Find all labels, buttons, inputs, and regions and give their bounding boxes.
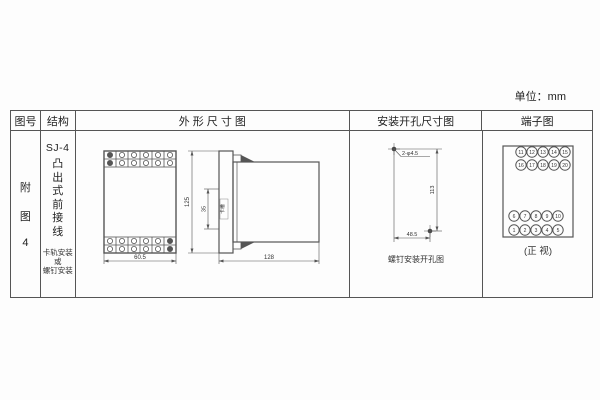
svg-text:9: 9 bbox=[545, 214, 548, 220]
header-mounting: 安装开孔尺寸图 bbox=[350, 111, 483, 130]
terminal-9: 9 bbox=[541, 211, 551, 221]
terminal-12: 12 bbox=[526, 147, 536, 157]
fig-no-cell: 附 图 4 bbox=[11, 131, 41, 297]
svg-text:1: 1 bbox=[512, 228, 515, 234]
terminal-15: 15 bbox=[559, 147, 569, 157]
terminal-circles: 1112131415161718192067891012345 bbox=[508, 147, 569, 235]
terminal-caption: (正 视) bbox=[524, 245, 552, 257]
screw-terminal bbox=[107, 160, 112, 165]
screw-terminal bbox=[107, 238, 112, 243]
screw-terminal bbox=[167, 246, 172, 251]
front-width-dim: 60.5 bbox=[134, 255, 146, 261]
svg-text:3: 3 bbox=[534, 228, 537, 234]
header-outline: 外 形 尺 寸 图 bbox=[76, 111, 350, 130]
terminal-5: 5 bbox=[552, 225, 562, 235]
terminal-1: 1 bbox=[508, 225, 518, 235]
structure-cell: SJ-4 凸出式前接线 卡轨安装 或 螺钉安装 bbox=[41, 131, 76, 297]
table-body-row: 附 图 4 SJ-4 凸出式前接线 卡轨安装 或 螺钉安装 bbox=[11, 131, 592, 297]
table-header-row: 图号 结构 外 形 尺 寸 图 安装开孔尺寸图 端子图 bbox=[11, 111, 592, 131]
slot-dim: 35 bbox=[201, 206, 207, 212]
mounting-drawing-cell: 2-φ4.5 113 48.5 螺钉安装开孔图 bbox=[350, 131, 483, 297]
screw-terminal bbox=[119, 152, 124, 157]
front-view bbox=[104, 151, 176, 264]
screw-terminal bbox=[131, 152, 136, 157]
fig-no-char: 附 bbox=[20, 179, 31, 195]
screw-terminal bbox=[167, 238, 172, 243]
side-height-dim: 125 bbox=[185, 196, 191, 207]
svg-text:17: 17 bbox=[529, 163, 535, 169]
model-label: SJ-4 bbox=[46, 142, 70, 154]
slot-label: 卡槽 bbox=[219, 204, 226, 214]
screw-terminal bbox=[155, 152, 160, 157]
holes-label: 2-φ4.5 bbox=[402, 151, 418, 157]
datasheet-page: 单位：mm 图号 结构 外 形 尺 寸 图 安装开孔尺寸图 端子图 附 图 4 … bbox=[0, 0, 600, 400]
terminal-7: 7 bbox=[519, 211, 529, 221]
screw-terminal bbox=[143, 246, 148, 251]
terminal-6: 6 bbox=[508, 211, 518, 221]
svg-text:19: 19 bbox=[551, 163, 557, 169]
screw-terminal bbox=[131, 246, 136, 251]
header-terminal: 端子图 bbox=[482, 111, 592, 130]
header-structure: 结构 bbox=[41, 111, 76, 130]
header-fig-no: 图号 bbox=[11, 111, 41, 130]
mount-note-line: 螺钉安装 bbox=[43, 266, 73, 275]
terminal-3: 3 bbox=[530, 225, 540, 235]
svg-text:2: 2 bbox=[523, 228, 526, 234]
terminal-2: 2 bbox=[519, 225, 529, 235]
svg-text:15: 15 bbox=[562, 150, 568, 156]
mounting-caption: 螺钉安装开孔图 bbox=[388, 254, 444, 264]
dimension-table: 图号 结构 外 形 尺 寸 图 安装开孔尺寸图 端子图 附 图 4 SJ-4 凸… bbox=[10, 110, 593, 298]
terminal-17: 17 bbox=[526, 160, 536, 170]
svg-text:13: 13 bbox=[540, 150, 546, 156]
terminal-body-outline bbox=[503, 146, 573, 237]
terminal-13: 13 bbox=[537, 147, 547, 157]
screw-terminal bbox=[155, 160, 160, 165]
screw-terminal bbox=[143, 238, 148, 243]
svg-text:11: 11 bbox=[518, 150, 523, 156]
side-view bbox=[188, 151, 319, 264]
mounting-height-dim: 113 bbox=[430, 186, 436, 195]
svg-text:10: 10 bbox=[555, 214, 561, 220]
mount-note-line: 卡轨安装 bbox=[43, 248, 73, 257]
terminal-18: 18 bbox=[537, 160, 547, 170]
svg-text:4: 4 bbox=[545, 228, 548, 234]
screw-terminal bbox=[107, 246, 112, 251]
screw-terminal bbox=[167, 152, 172, 157]
svg-text:6: 6 bbox=[512, 214, 515, 220]
outline-drawing-cell: 60.5 bbox=[76, 131, 350, 297]
terminal-diagram-svg: 1112131415161718192067891012345 (正 视) bbox=[483, 131, 592, 297]
unit-label: 单位：mm bbox=[515, 88, 566, 104]
outline-drawing-svg: 60.5 bbox=[76, 131, 349, 297]
screw-terminal bbox=[143, 152, 148, 157]
mount-note-line: 或 bbox=[43, 257, 73, 266]
svg-text:7: 7 bbox=[523, 214, 526, 220]
terminal-10: 10 bbox=[552, 211, 562, 221]
terminal-diagram-cell: 1112131415161718192067891012345 (正 视) bbox=[483, 131, 592, 297]
terminal-19: 19 bbox=[548, 160, 558, 170]
screw-terminal bbox=[131, 238, 136, 243]
screw-terminal bbox=[167, 160, 172, 165]
screw-terminal bbox=[155, 246, 160, 251]
terminal-11: 11 bbox=[515, 147, 525, 157]
terminal-8: 8 bbox=[530, 211, 540, 221]
side-depth-dim: 128 bbox=[264, 255, 275, 261]
svg-text:12: 12 bbox=[529, 150, 535, 156]
screw-terminal bbox=[119, 160, 124, 165]
screw-terminal bbox=[119, 238, 124, 243]
svg-text:14: 14 bbox=[551, 150, 557, 156]
terminal-14: 14 bbox=[548, 147, 558, 157]
mounting-width-dim: 48.5 bbox=[406, 232, 417, 238]
svg-text:5: 5 bbox=[556, 228, 559, 234]
svg-text:8: 8 bbox=[534, 214, 537, 220]
screw-terminal bbox=[131, 160, 136, 165]
svg-text:16: 16 bbox=[518, 163, 524, 169]
mount-note: 卡轨安装 或 螺钉安装 bbox=[43, 248, 73, 275]
terminal-16: 16 bbox=[515, 160, 525, 170]
mounting-drawing-svg: 2-φ4.5 113 48.5 螺钉安装开孔图 bbox=[350, 131, 482, 297]
structure-type-label: 凸出式前接线 bbox=[51, 158, 64, 239]
svg-text:20: 20 bbox=[562, 163, 568, 169]
svg-text:18: 18 bbox=[540, 163, 546, 169]
screw-terminal bbox=[119, 246, 124, 251]
screw-terminal bbox=[155, 238, 160, 243]
screw-terminal bbox=[107, 152, 112, 157]
fig-no-char: 4 bbox=[22, 237, 28, 249]
screw-terminal bbox=[143, 160, 148, 165]
terminal-4: 4 bbox=[541, 225, 551, 235]
fig-no-char: 图 bbox=[20, 208, 31, 224]
terminal-20: 20 bbox=[559, 160, 569, 170]
